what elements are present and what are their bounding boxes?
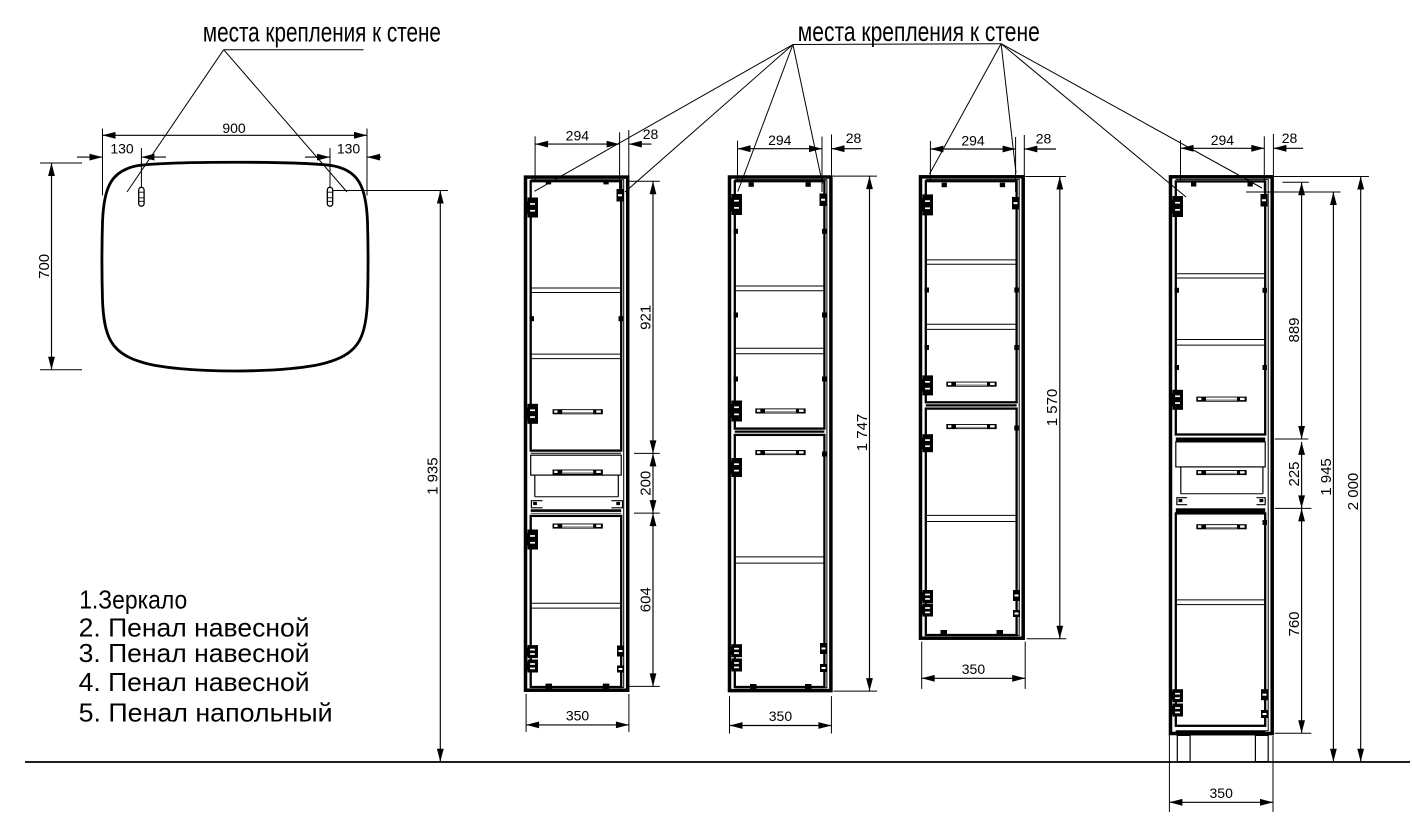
- svg-text:294: 294: [768, 132, 792, 148]
- svg-text:294: 294: [566, 128, 590, 144]
- svg-text:700: 700: [36, 254, 53, 279]
- svg-text:места крепления к стене: места крепления к стене: [203, 17, 441, 48]
- svg-text:1 935: 1 935: [425, 457, 442, 495]
- svg-text:921: 921: [637, 305, 654, 330]
- svg-text:5. Пенал напольный: 5. Пенал напольный: [79, 698, 333, 728]
- svg-text:1 747: 1 747: [854, 414, 871, 452]
- svg-text:28: 28: [1036, 131, 1052, 147]
- svg-text:1 945: 1 945: [1318, 458, 1335, 496]
- svg-text:350: 350: [566, 707, 590, 723]
- svg-text:3. Пенал навесной: 3. Пенал навесной: [79, 638, 310, 668]
- svg-text:294: 294: [1211, 132, 1235, 148]
- svg-text:900: 900: [222, 120, 246, 136]
- svg-text:1 570: 1 570: [1044, 389, 1061, 427]
- svg-text:350: 350: [962, 661, 986, 677]
- svg-text:130: 130: [337, 141, 361, 157]
- svg-text:4. Пенал навесной: 4. Пенал навесной: [79, 667, 310, 697]
- svg-text:1.Зеркало: 1.Зеркало: [79, 584, 187, 614]
- svg-text:28: 28: [846, 130, 862, 146]
- svg-text:294: 294: [961, 133, 985, 149]
- svg-text:2 000: 2 000: [1345, 473, 1362, 511]
- svg-text:889: 889: [1286, 317, 1303, 342]
- svg-text:28: 28: [1282, 130, 1298, 146]
- svg-text:604: 604: [637, 587, 654, 612]
- svg-text:760: 760: [1286, 611, 1303, 636]
- svg-text:350: 350: [1210, 785, 1234, 801]
- svg-text:130: 130: [110, 141, 134, 157]
- svg-text:28: 28: [643, 126, 659, 142]
- svg-text:225: 225: [1286, 461, 1303, 486]
- svg-text:350: 350: [769, 708, 793, 724]
- svg-text:места крепления к стене: места крепления к стене: [798, 16, 1040, 47]
- svg-text:200: 200: [637, 471, 654, 496]
